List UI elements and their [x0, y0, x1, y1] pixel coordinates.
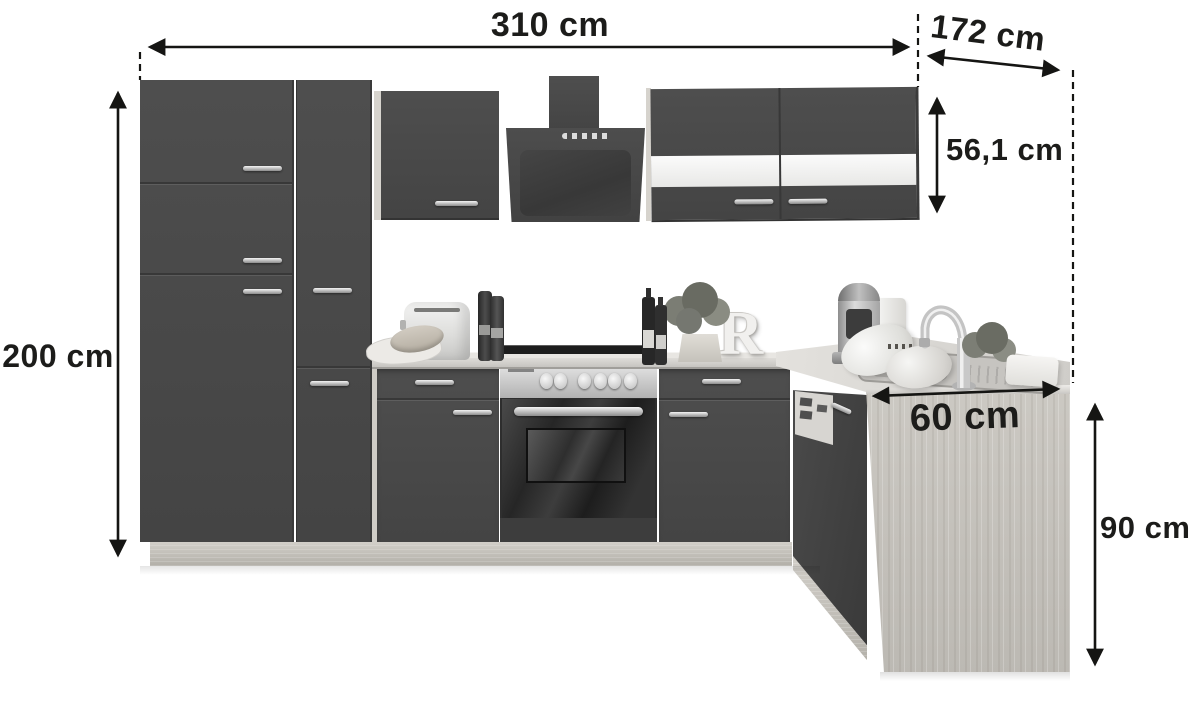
- dimension-lines: [0, 0, 1200, 706]
- kitchen-product-image: R 310: [0, 0, 1200, 706]
- dim-label-wall-cabinet-height: 56,1 cm: [946, 134, 1070, 167]
- dim-label-worktop-height: 90 cm: [1100, 512, 1188, 545]
- dim-label-worktop-depth: 60 cm: [884, 395, 1045, 440]
- dim-label-total-width: 310 cm: [430, 8, 670, 44]
- dim-label-total-height: 200 cm: [0, 340, 116, 374]
- dim-line-side-depth: [929, 56, 1058, 70]
